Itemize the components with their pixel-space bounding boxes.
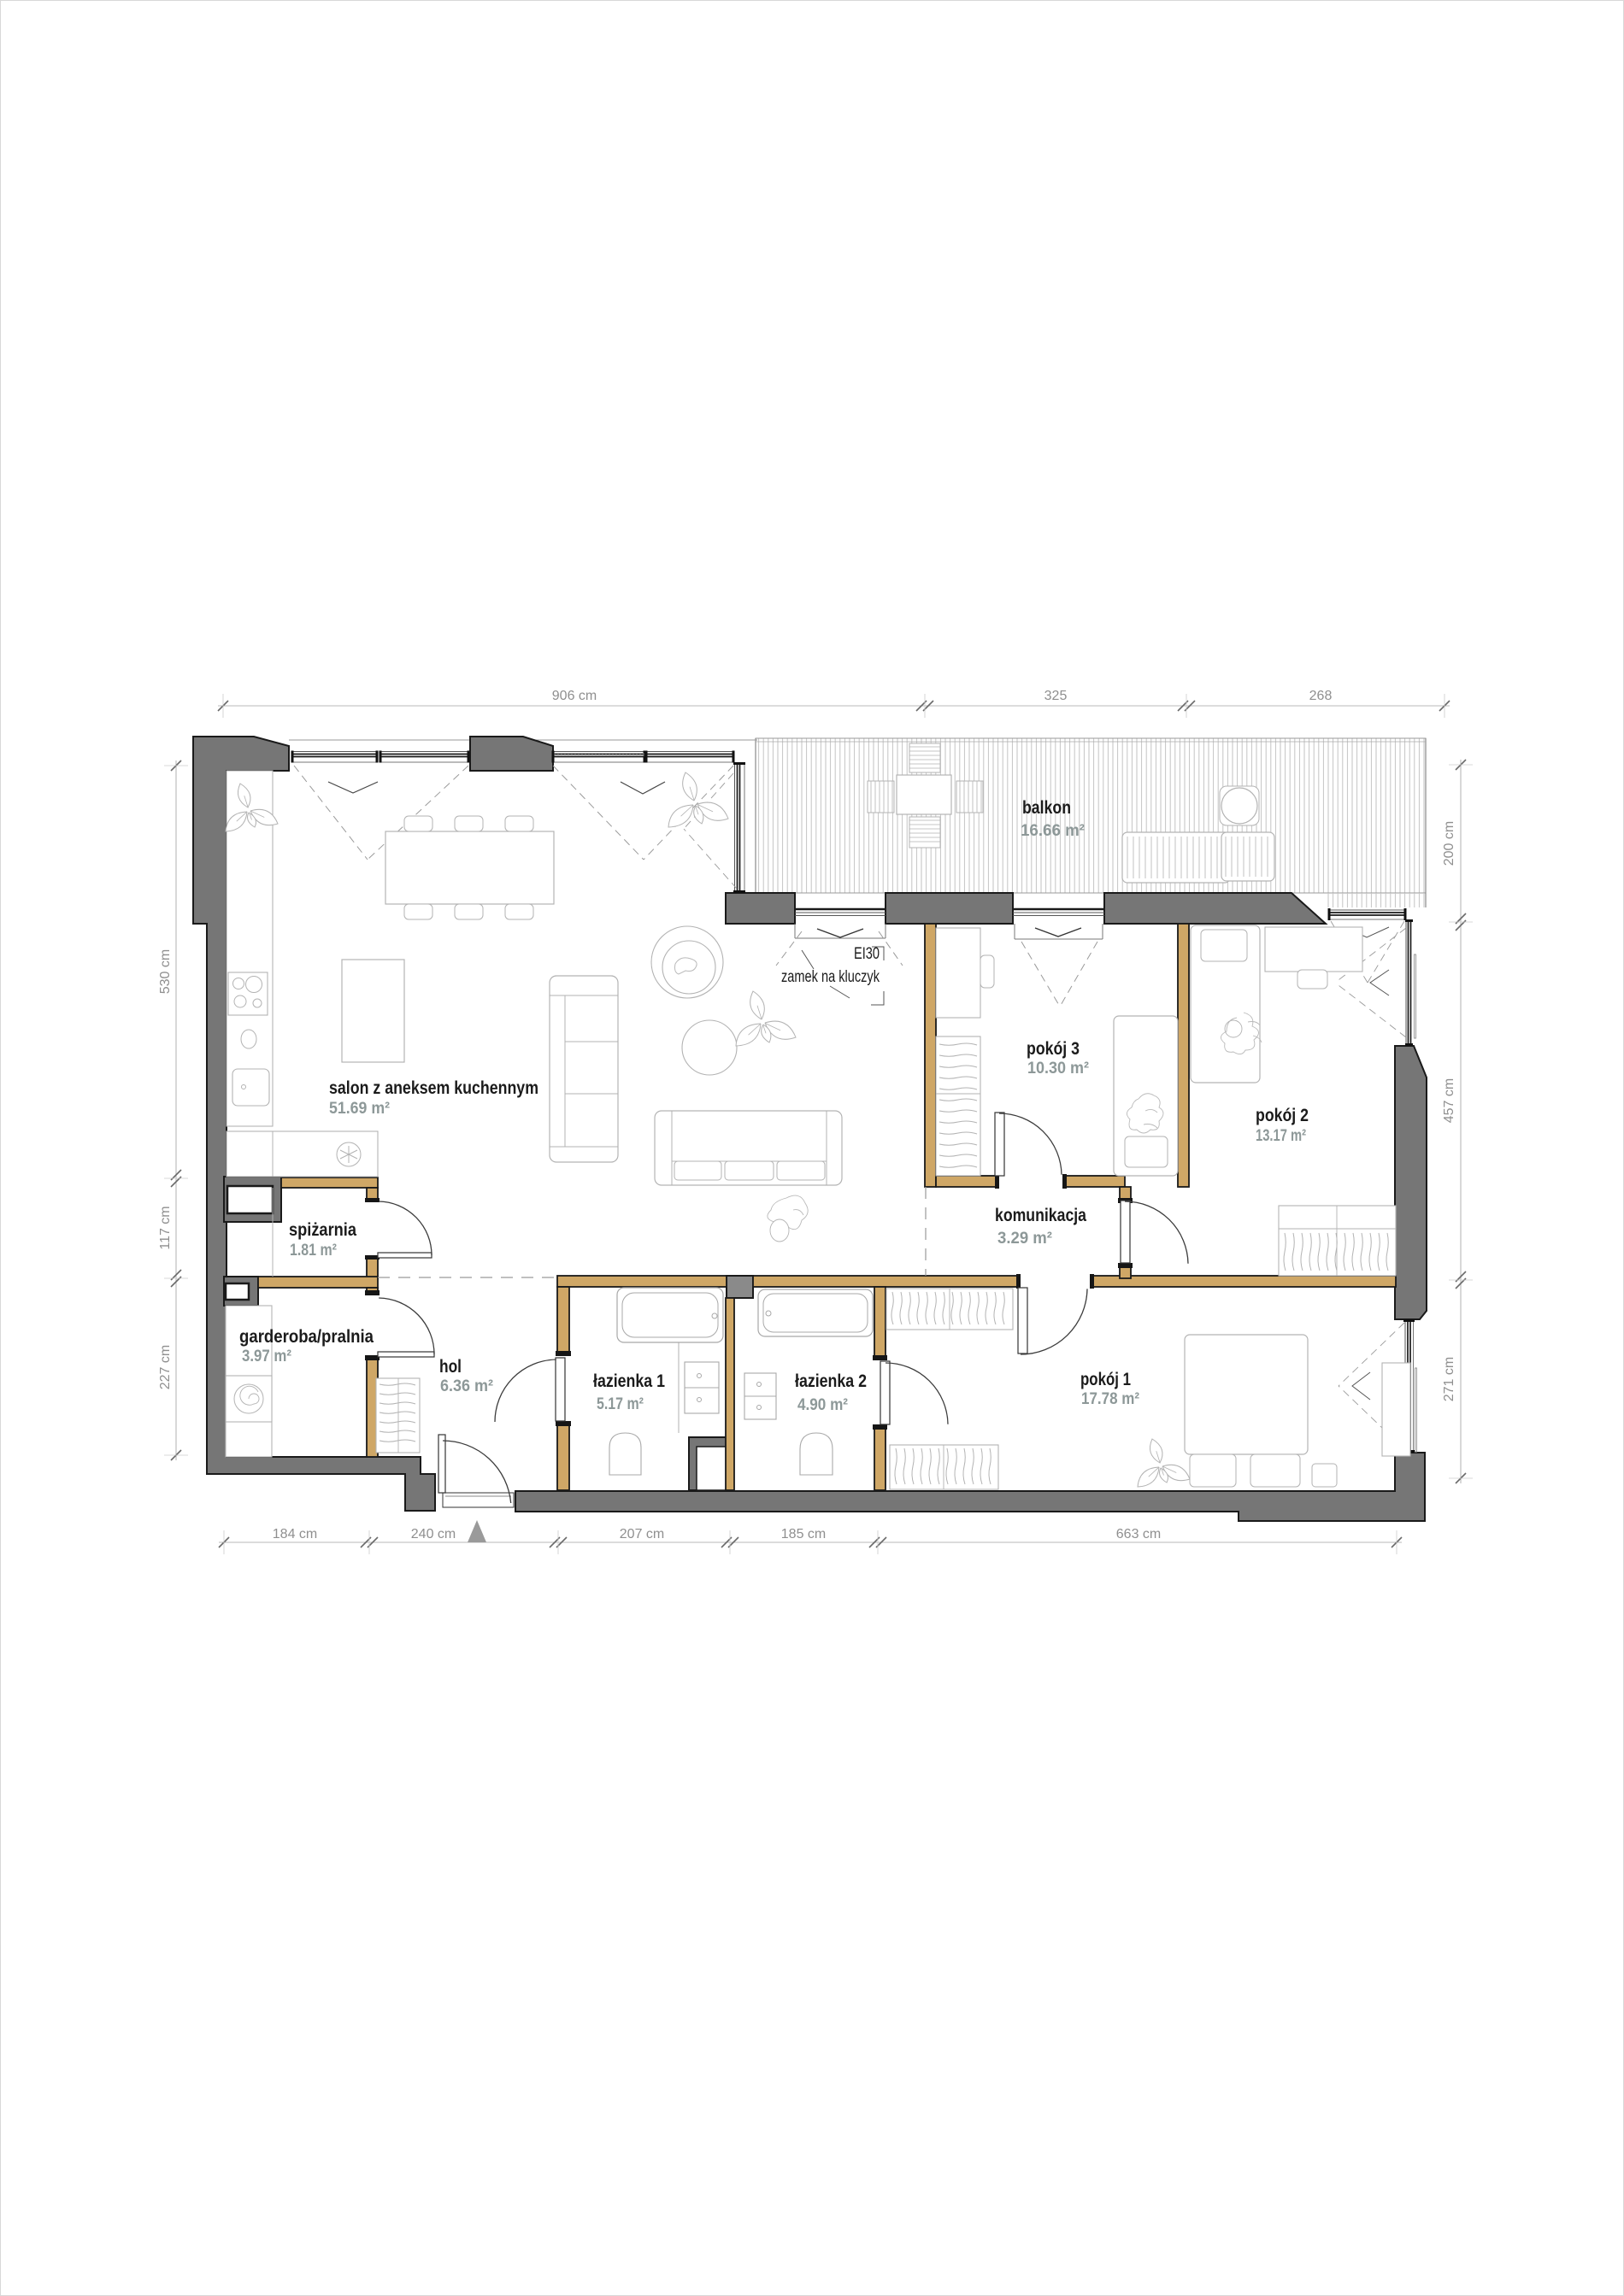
svg-text:łazienka 2: łazienka 2 <box>795 1371 867 1391</box>
svg-text:garderoba/pralnia: garderoba/pralnia <box>239 1327 374 1347</box>
svg-text:4.90 m²: 4.90 m² <box>797 1396 848 1414</box>
svg-text:325: 325 <box>1044 689 1068 703</box>
svg-text:10.30 m²: 10.30 m² <box>1027 1060 1089 1078</box>
svg-text:pokój 1: pokój 1 <box>1080 1370 1131 1389</box>
svg-text:6.36 m²: 6.36 m² <box>440 1377 493 1395</box>
svg-text:zamek na kluczyk: zamek na kluczyk <box>781 968 880 986</box>
svg-text:16.66 m²: 16.66 m² <box>1021 822 1085 840</box>
svg-text:51.69 m²: 51.69 m² <box>329 1100 390 1118</box>
svg-text:185 cm: 185 cm <box>781 1527 826 1541</box>
svg-text:457 cm: 457 cm <box>1442 1078 1456 1123</box>
svg-text:200 cm: 200 cm <box>1442 821 1456 866</box>
svg-text:1.81 m²: 1.81 m² <box>290 1242 337 1260</box>
svg-text:komunikacja: komunikacja <box>995 1206 1086 1225</box>
svg-text:17.78 m²: 17.78 m² <box>1081 1390 1139 1408</box>
svg-text:pokój 2: pokój 2 <box>1256 1106 1309 1125</box>
svg-text:117 cm: 117 cm <box>158 1206 173 1249</box>
svg-text:5.17 m²: 5.17 m² <box>597 1395 644 1413</box>
svg-text:184 cm: 184 cm <box>273 1527 317 1541</box>
svg-text:EI30: EI30 <box>854 945 880 963</box>
svg-text:balkon: balkon <box>1022 798 1071 818</box>
svg-text:207 cm: 207 cm <box>620 1527 664 1541</box>
svg-text:3.29 m²: 3.29 m² <box>997 1230 1052 1248</box>
svg-text:530 cm: 530 cm <box>158 949 173 994</box>
svg-text:hol: hol <box>439 1357 462 1377</box>
svg-text:271 cm: 271 cm <box>1442 1357 1456 1401</box>
svg-text:spiżarnia: spiżarnia <box>289 1220 356 1240</box>
svg-text:pokój 3: pokój 3 <box>1027 1039 1080 1059</box>
svg-text:3.97 m²: 3.97 m² <box>242 1348 291 1365</box>
svg-text:227 cm: 227 cm <box>158 1345 173 1389</box>
svg-text:13.17 m²: 13.17 m² <box>1256 1127 1306 1145</box>
svg-text:906 cm: 906 cm <box>552 689 597 703</box>
svg-text:łazienka 1: łazienka 1 <box>593 1371 665 1391</box>
svg-text:268: 268 <box>1309 689 1333 703</box>
svg-text:salon z aneksem kuchennym: salon z aneksem kuchennym <box>329 1078 538 1098</box>
svg-text:240 cm: 240 cm <box>411 1527 456 1541</box>
svg-text:663 cm: 663 cm <box>1116 1527 1161 1541</box>
